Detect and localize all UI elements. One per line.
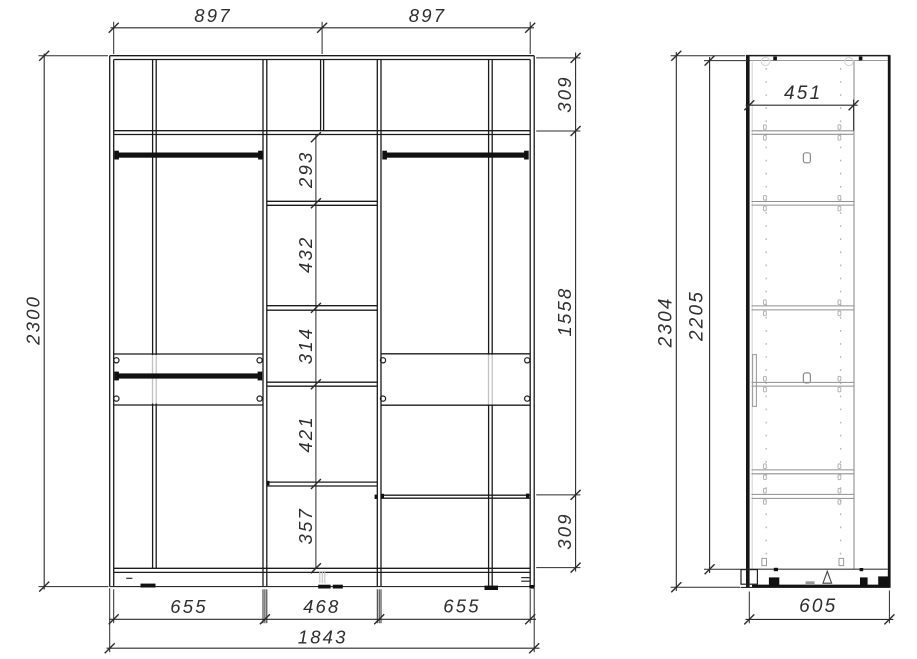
svg-text:468: 468 [303, 596, 340, 617]
svg-text:451: 451 [784, 83, 822, 104]
svg-text:357: 357 [295, 507, 316, 544]
svg-text:309: 309 [554, 75, 575, 112]
svg-text:1843: 1843 [298, 626, 348, 647]
svg-text:432: 432 [295, 236, 316, 273]
svg-text:897: 897 [409, 5, 446, 26]
svg-text:897: 897 [194, 5, 231, 26]
svg-text:655: 655 [170, 596, 207, 617]
svg-text:2205: 2205 [687, 290, 708, 342]
svg-text:2304: 2304 [656, 296, 677, 348]
svg-text:421: 421 [295, 415, 316, 452]
svg-text:2300: 2300 [22, 295, 43, 346]
svg-text:309: 309 [554, 512, 575, 549]
svg-text:314: 314 [295, 327, 316, 364]
svg-text:293: 293 [295, 151, 316, 189]
svg-text:1558: 1558 [554, 287, 575, 337]
svg-text:655: 655 [443, 596, 480, 617]
svg-text:605: 605 [799, 596, 837, 617]
